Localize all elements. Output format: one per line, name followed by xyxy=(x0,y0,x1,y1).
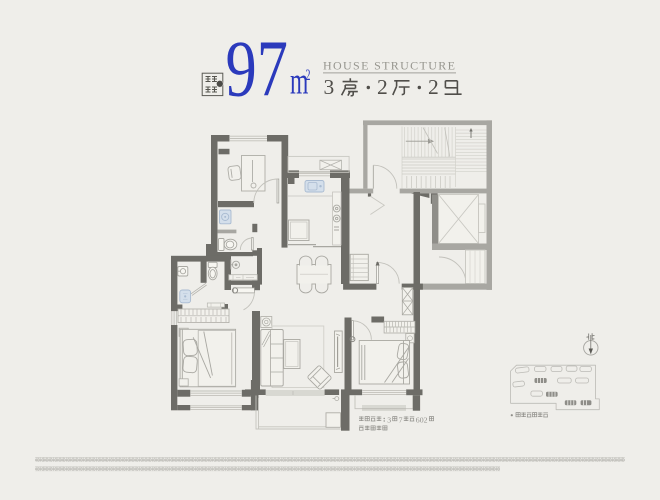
svg-text:2: 2 xyxy=(428,75,439,99)
svg-text:2: 2 xyxy=(306,66,311,84)
svg-text:602: 602 xyxy=(416,415,428,424)
svg-text:2: 2 xyxy=(377,75,388,99)
svg-text:7: 7 xyxy=(399,415,403,424)
svg-text:HOUSE STRUCTURE: HOUSE STRUCTURE xyxy=(323,58,456,72)
svg-text:3: 3 xyxy=(387,415,391,424)
svg-text:3: 3 xyxy=(324,75,335,99)
svg-text:97: 97 xyxy=(225,24,287,113)
